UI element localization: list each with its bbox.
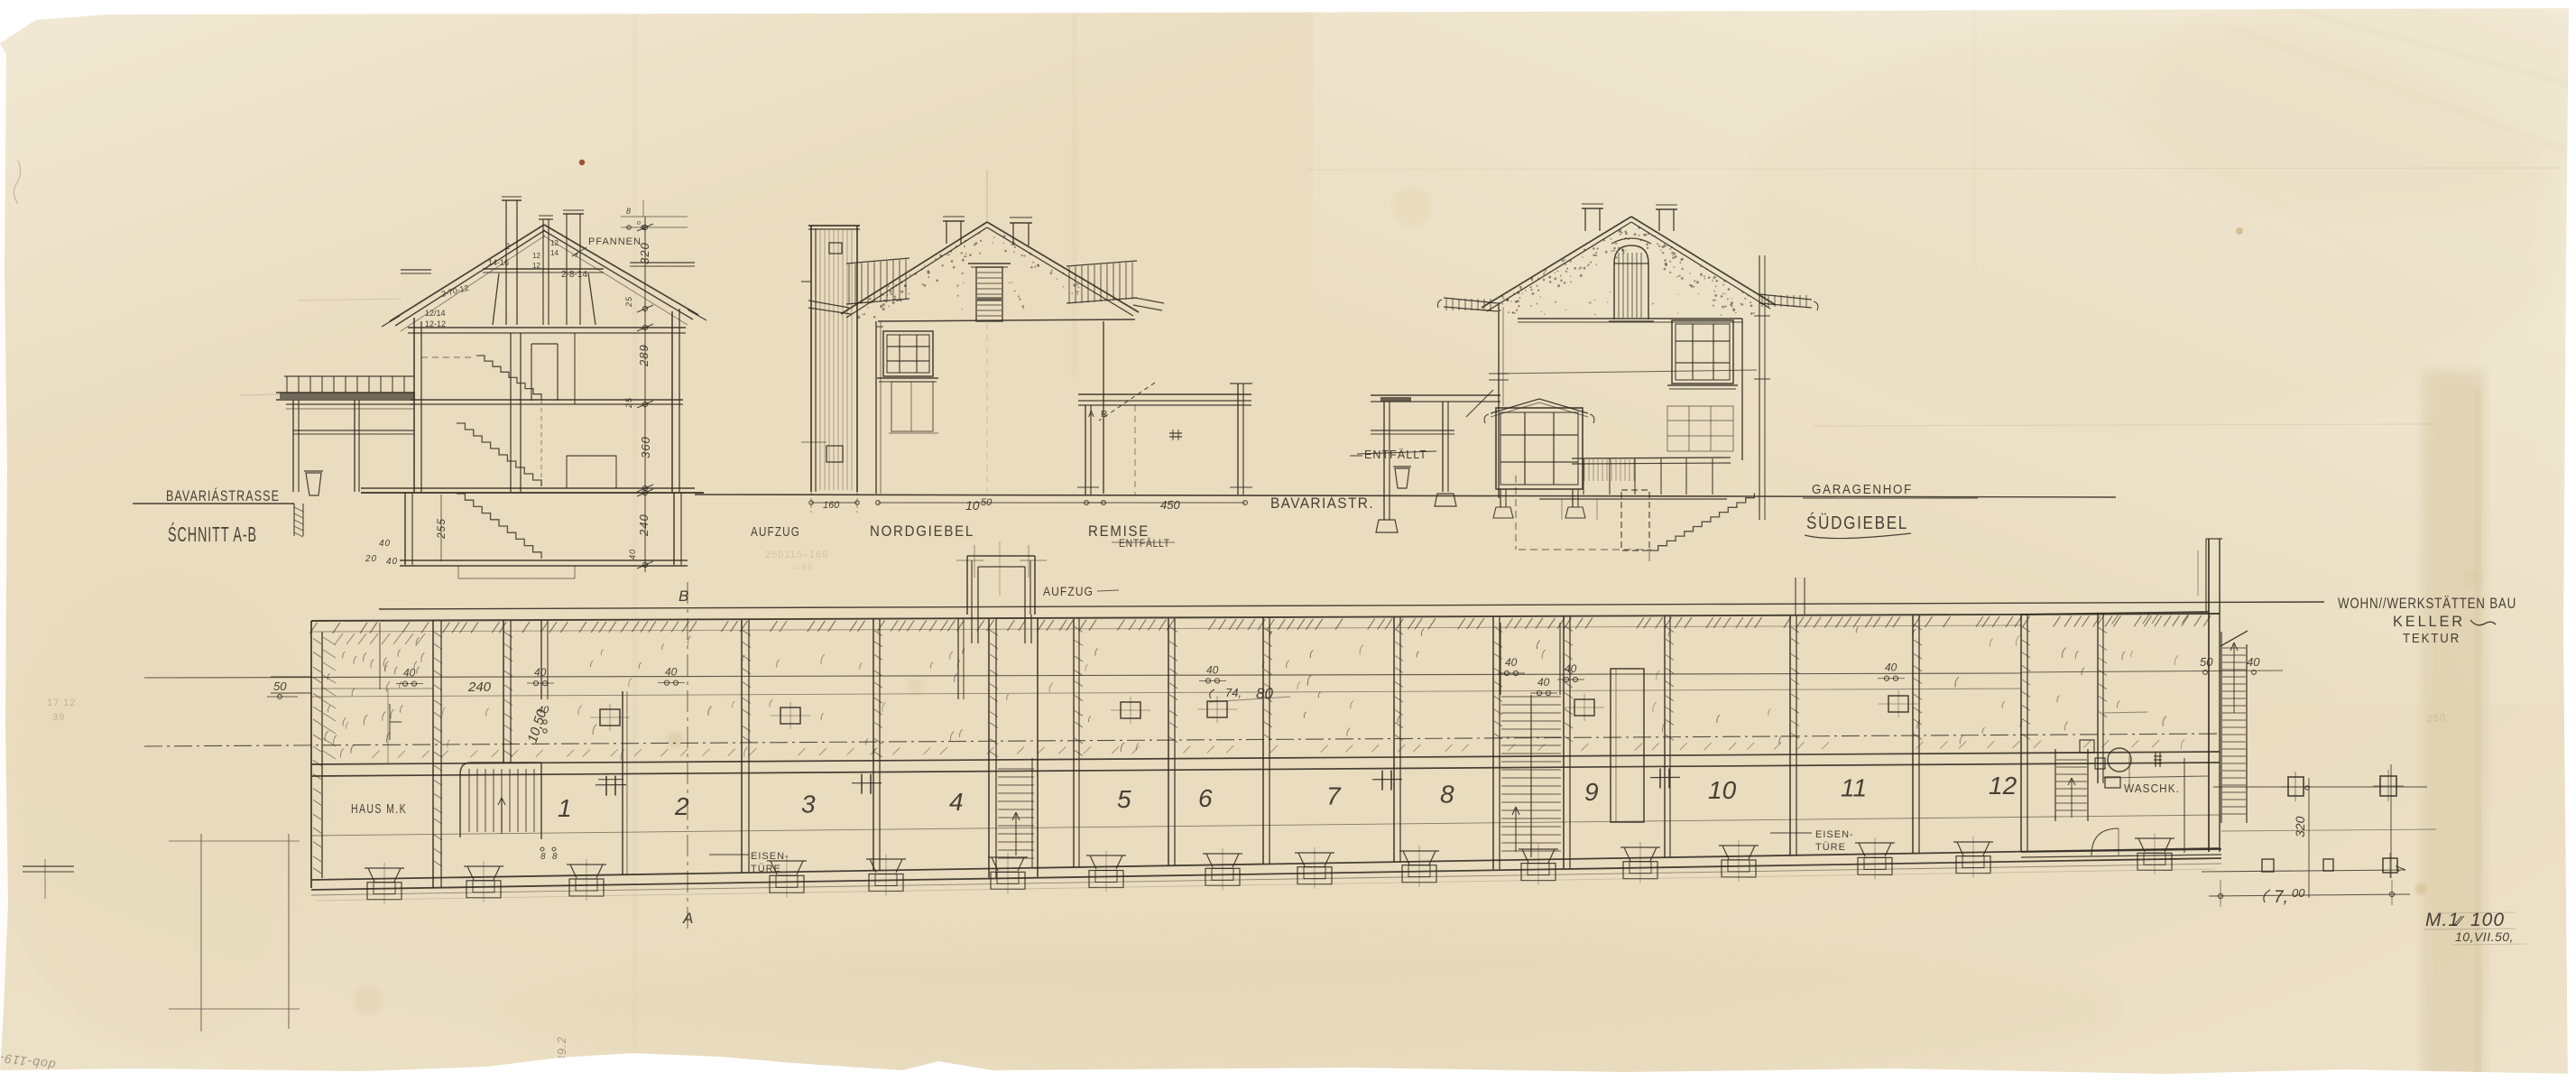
svg-text:5: 5 bbox=[1117, 785, 1131, 813]
svg-text:12: 12 bbox=[550, 239, 559, 247]
svg-text:40: 40 bbox=[628, 549, 637, 559]
svg-text:320: 320 bbox=[2293, 816, 2307, 837]
svg-text:50: 50 bbox=[2200, 655, 2213, 669]
svg-text:255: 255 bbox=[435, 518, 448, 540]
svg-text:7,: 7, bbox=[2274, 888, 2288, 907]
svg-text:17 12: 17 12 bbox=[47, 698, 77, 708]
svg-text:40: 40 bbox=[379, 539, 391, 549]
svg-text:12: 12 bbox=[532, 262, 540, 270]
svg-text:12: 12 bbox=[1989, 772, 2017, 800]
svg-text:A: A bbox=[1088, 410, 1094, 420]
svg-text:8: 8 bbox=[626, 207, 632, 216]
svg-text:4: 4 bbox=[949, 788, 964, 816]
svg-text:74,: 74, bbox=[1225, 686, 1242, 699]
svg-text:8: 8 bbox=[1440, 781, 1454, 809]
svg-text:8: 8 bbox=[540, 852, 547, 862]
svg-text:25: 25 bbox=[624, 296, 633, 308]
svg-text:GARAGENHOF: GARAGENHOF bbox=[1812, 482, 1913, 497]
svg-text:14: 14 bbox=[550, 249, 559, 257]
svg-text:EISEN-: EISEN- bbox=[1815, 829, 1854, 840]
svg-text:360: 360 bbox=[639, 436, 652, 458]
svg-text:40: 40 bbox=[1206, 663, 1219, 676]
svg-text:20: 20 bbox=[365, 554, 377, 564]
svg-text:00: 00 bbox=[2292, 886, 2305, 900]
svg-text:11: 11 bbox=[1841, 774, 1867, 802]
svg-text:ENTFÄLLT: ENTFÄLLT bbox=[1119, 537, 1170, 550]
svg-text:40: 40 bbox=[1537, 676, 1550, 689]
svg-text:450: 450 bbox=[1160, 498, 1180, 512]
svg-text:2: 2 bbox=[674, 792, 689, 820]
svg-text:289: 289 bbox=[637, 344, 651, 367]
svg-text:ŚÜDGIEBEL: ŚÜDGIEBEL bbox=[1806, 512, 1908, 533]
svg-text:TEKTUR: TEKTUR bbox=[2403, 631, 2461, 646]
svg-text:14-16: 14-16 bbox=[488, 258, 509, 267]
svg-text:BAVARIÁSTRASSE: BAVARIÁSTRASSE bbox=[166, 487, 280, 504]
svg-text:25: 25 bbox=[624, 397, 633, 409]
svg-text:WOHN//WERKSTÄTTEN BAU: WOHN//WERKSTÄTTEN BAU bbox=[2338, 595, 2516, 612]
svg-text:1: 1 bbox=[558, 794, 572, 822]
svg-text:10,VII.50,: 10,VII.50, bbox=[2455, 929, 2514, 944]
svg-text:9: 9 bbox=[1584, 778, 1599, 806]
svg-text:250: 250 bbox=[2426, 713, 2446, 725]
svg-text:A: A bbox=[682, 910, 693, 927]
svg-text:12-12: 12-12 bbox=[425, 319, 446, 328]
svg-text:40: 40 bbox=[665, 666, 678, 679]
svg-text:40: 40 bbox=[1505, 656, 1518, 669]
svg-text:10: 10 bbox=[1708, 776, 1737, 804]
svg-text:12: 12 bbox=[532, 252, 540, 260]
svg-text:HAUS M.K: HAUS M.K bbox=[351, 801, 407, 817]
svg-text:R: R bbox=[1101, 410, 1107, 420]
svg-text:6: 6 bbox=[1198, 784, 1213, 812]
svg-text:10: 10 bbox=[965, 498, 980, 513]
svg-text:50: 50 bbox=[273, 680, 287, 693]
svg-text:PFANNEN: PFANNEN bbox=[588, 236, 642, 247]
svg-text:40: 40 bbox=[386, 557, 398, 567]
svg-text:o: o bbox=[637, 220, 642, 227]
svg-text:2: 2 bbox=[505, 242, 510, 251]
svg-text:2-8-14: 2-8-14 bbox=[561, 270, 587, 280]
svg-text:240: 240 bbox=[467, 680, 492, 695]
svg-text:AUFZUG: AUFZUG bbox=[1043, 584, 1094, 598]
svg-text:80: 80 bbox=[1256, 685, 1273, 702]
svg-text:NORDGIEBEL: NORDGIEBEL bbox=[870, 523, 974, 540]
svg-text:40: 40 bbox=[1885, 661, 1897, 674]
svg-text:40: 40 bbox=[534, 666, 547, 679]
svg-text:250115–165: 250115–165 bbox=[765, 550, 828, 560]
svg-text:50: 50 bbox=[981, 497, 993, 508]
svg-text:EISEN-: EISEN- bbox=[751, 851, 789, 862]
svg-text:BAVARIÁSTR.: BAVARIÁSTR. bbox=[1270, 495, 1374, 512]
svg-text:160: 160 bbox=[823, 500, 840, 511]
svg-text:40: 40 bbox=[1565, 662, 1577, 675]
svg-text:ENTFÄLLT: ENTFÄLLT bbox=[1364, 448, 1427, 461]
svg-text:40: 40 bbox=[2247, 655, 2260, 669]
svg-text:WASCHK.: WASCHK. bbox=[2124, 781, 2180, 795]
svg-text:AUFZUG: AUFZUG bbox=[751, 524, 800, 540]
svg-text:8: 8 bbox=[552, 852, 559, 862]
svg-text:ŚCHNITT A-B: ŚCHNITT A-B bbox=[168, 522, 257, 546]
svg-text:KELLER: KELLER bbox=[2393, 613, 2465, 630]
svg-text:12/14: 12/14 bbox=[425, 309, 446, 318]
svg-text:TÜRE: TÜRE bbox=[751, 864, 781, 874]
svg-text:39: 39 bbox=[52, 712, 65, 723]
svg-text:40: 40 bbox=[538, 705, 549, 716]
svg-text:3: 3 bbox=[801, 791, 816, 818]
svg-text:7: 7 bbox=[1326, 782, 1342, 810]
svg-text:– 65: – 65 bbox=[792, 563, 813, 573]
svg-text:240: 240 bbox=[637, 513, 651, 537]
svg-text:TÜRE: TÜRE bbox=[1815, 842, 1846, 853]
svg-text:B: B bbox=[679, 587, 688, 605]
